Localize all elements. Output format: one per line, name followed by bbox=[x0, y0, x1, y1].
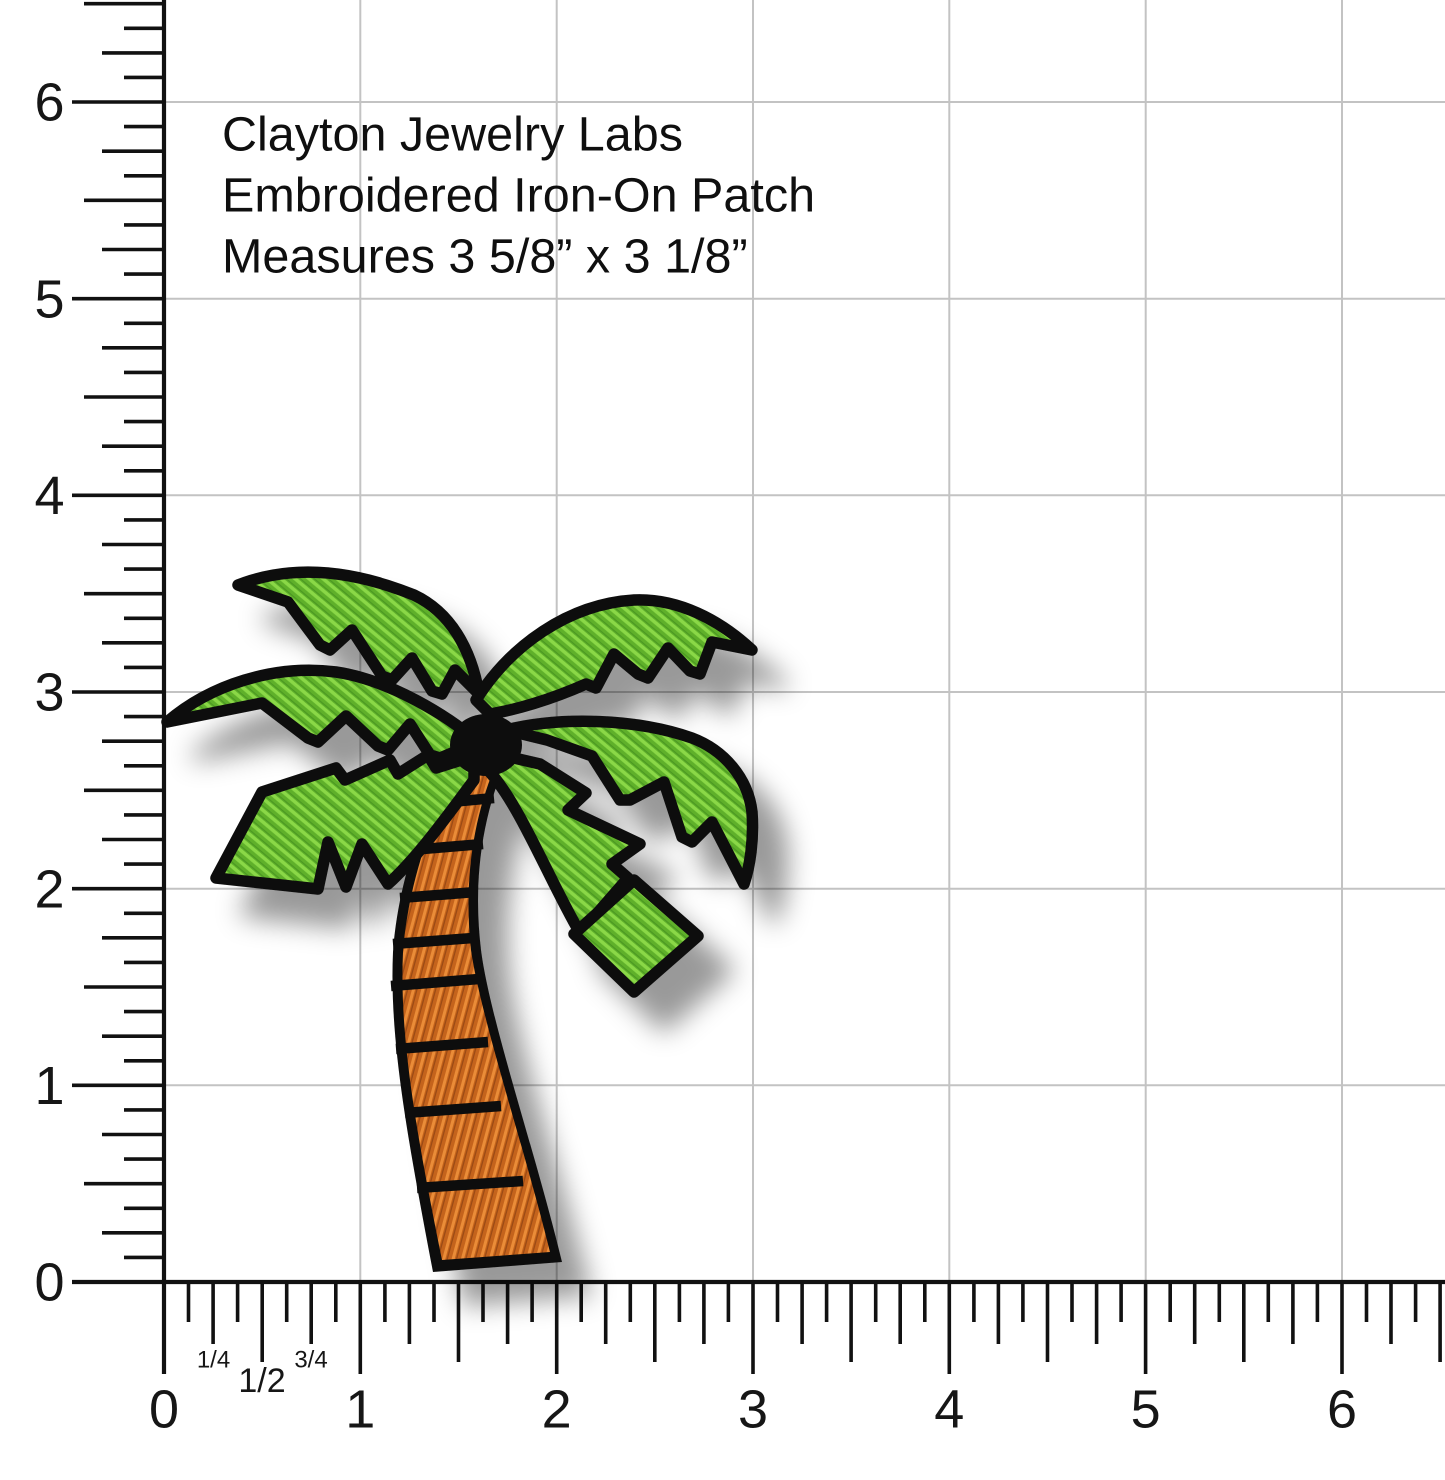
svg-text:1/2: 1/2 bbox=[238, 1362, 285, 1400]
svg-text:2: 2 bbox=[542, 1380, 572, 1440]
svg-text:5: 5 bbox=[1131, 1380, 1161, 1440]
svg-text:6: 6 bbox=[1327, 1380, 1357, 1440]
svg-text:1: 1 bbox=[345, 1380, 375, 1440]
svg-text:1/4: 1/4 bbox=[197, 1347, 230, 1374]
svg-text:3: 3 bbox=[738, 1380, 768, 1440]
svg-text:1: 1 bbox=[34, 1056, 64, 1116]
svg-text:3: 3 bbox=[34, 663, 64, 723]
svg-text:5: 5 bbox=[34, 269, 64, 329]
svg-text:Clayton Jewelry Labs: Clayton Jewelry Labs bbox=[222, 108, 683, 162]
svg-text:Embroidered Iron-On Patch: Embroidered Iron-On Patch bbox=[222, 169, 815, 223]
svg-text:2: 2 bbox=[34, 859, 64, 919]
svg-text:3/4: 3/4 bbox=[294, 1347, 327, 1374]
svg-text:0: 0 bbox=[149, 1380, 179, 1440]
svg-text:0: 0 bbox=[34, 1253, 64, 1313]
svg-text:4: 4 bbox=[934, 1380, 964, 1440]
svg-text:4: 4 bbox=[34, 466, 64, 526]
svg-text:Measures 3 5/8” x 3 1/8”: Measures 3 5/8” x 3 1/8” bbox=[222, 230, 748, 284]
svg-text:6: 6 bbox=[34, 73, 64, 133]
